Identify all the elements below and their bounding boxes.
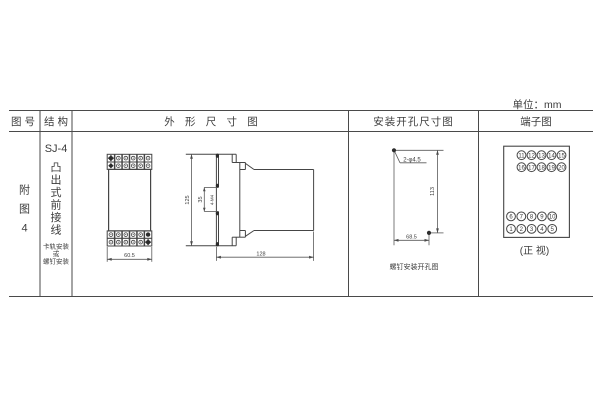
svg-text:结 构: 结 构 (44, 115, 68, 128)
svg-text:寸: 寸 (227, 115, 238, 128)
svg-text:或: 或 (53, 249, 60, 258)
svg-text:单位：mm: 单位：mm (513, 98, 562, 111)
svg-text:3: 3 (530, 227, 534, 233)
svg-text:端子图: 端子图 (520, 115, 552, 128)
svg-text:前: 前 (51, 198, 62, 212)
svg-text:2: 2 (520, 227, 524, 233)
svg-text:13: 13 (538, 153, 545, 159)
svg-text:60.5: 60.5 (124, 253, 135, 259)
svg-text:附: 附 (19, 183, 30, 197)
svg-text:SJ-4: SJ-4 (45, 143, 68, 155)
svg-text:图: 图 (19, 203, 30, 216)
svg-text:螺钉安装: 螺钉安装 (43, 257, 70, 266)
svg-text:4-M4: 4-M4 (210, 194, 215, 205)
svg-text:8: 8 (530, 215, 534, 221)
svg-text:接: 接 (51, 211, 62, 224)
svg-text:11: 11 (518, 153, 525, 159)
svg-text:(正 视): (正 视) (520, 244, 549, 257)
svg-text:外: 外 (164, 116, 175, 128)
svg-text:12: 12 (528, 153, 535, 159)
svg-text:螺钉安装开孔图: 螺钉安装开孔图 (390, 262, 439, 271)
svg-text:128: 128 (256, 251, 265, 257)
svg-text:4: 4 (540, 227, 544, 233)
svg-text:安装开孔尺寸图: 安装开孔尺寸图 (373, 115, 454, 128)
svg-text:9: 9 (540, 215, 544, 221)
svg-text:10: 10 (549, 215, 556, 221)
svg-text:形: 形 (185, 116, 196, 128)
svg-text:1: 1 (509, 227, 513, 233)
svg-text:35: 35 (198, 196, 204, 202)
svg-text:113: 113 (430, 187, 436, 196)
svg-text:125: 125 (185, 195, 191, 204)
svg-text:式: 式 (51, 186, 62, 199)
svg-text:图: 图 (247, 116, 258, 128)
svg-text:20: 20 (558, 165, 565, 171)
svg-text:14: 14 (548, 153, 555, 159)
svg-text:68.5: 68.5 (406, 235, 417, 241)
svg-text:4: 4 (21, 223, 27, 235)
svg-text:17: 17 (528, 165, 535, 171)
svg-text:图 号: 图 号 (11, 116, 35, 128)
svg-text:线: 线 (51, 223, 62, 237)
svg-text:6: 6 (509, 215, 513, 221)
svg-text:18: 18 (538, 165, 545, 171)
svg-text:卡轨安装: 卡轨安装 (43, 242, 70, 251)
svg-text:16: 16 (518, 165, 525, 171)
svg-text:尺: 尺 (206, 116, 217, 128)
svg-text:出: 出 (51, 173, 62, 187)
svg-text:7: 7 (520, 215, 524, 221)
svg-text:凸: 凸 (51, 162, 62, 174)
svg-text:19: 19 (548, 165, 555, 171)
svg-text:15: 15 (558, 153, 565, 159)
svg-text:5: 5 (551, 227, 555, 233)
svg-text:2-φ4.5: 2-φ4.5 (403, 157, 421, 163)
